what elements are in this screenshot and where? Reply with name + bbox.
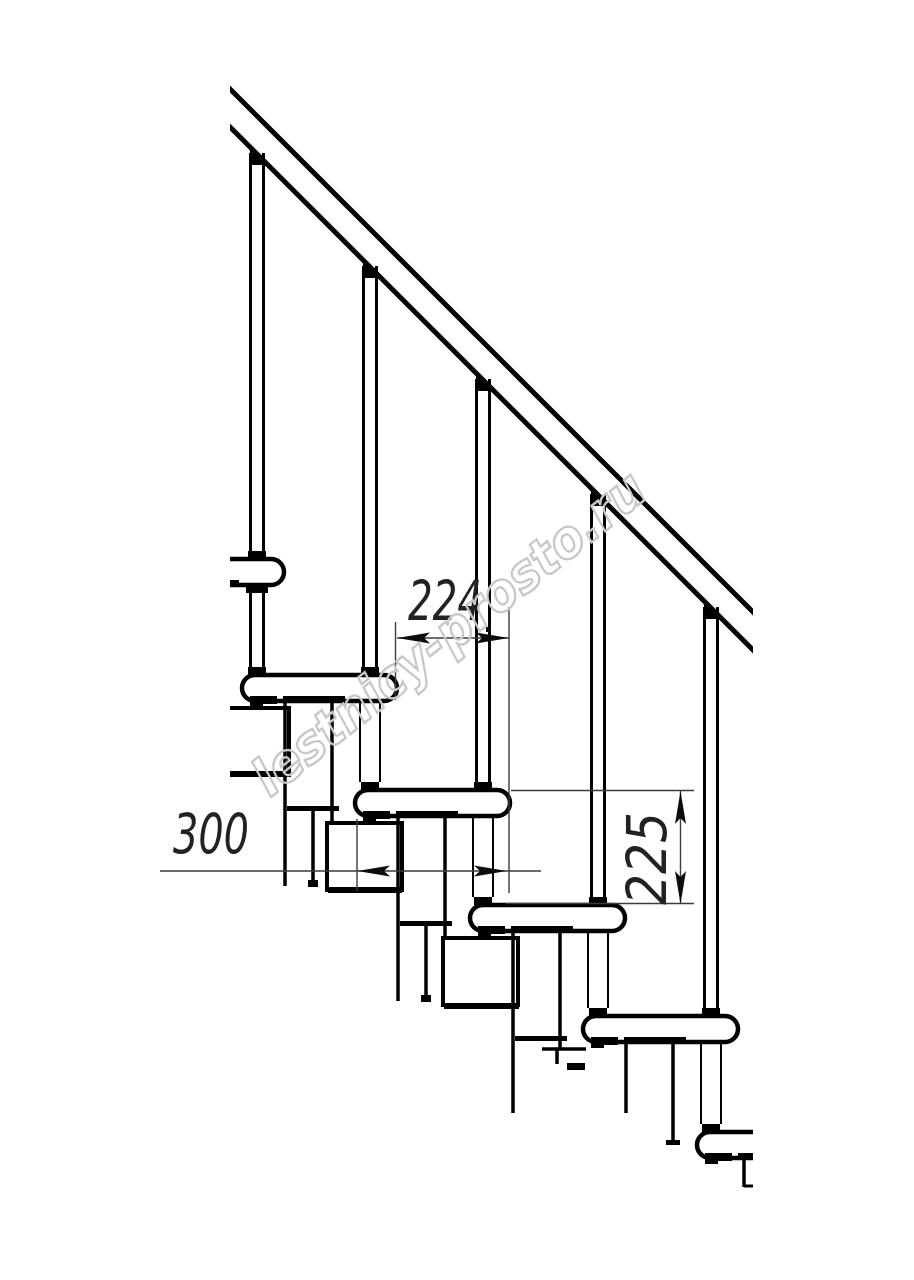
baluster-1 <box>250 147 264 675</box>
dimension-riser-225: 225 <box>615 812 679 905</box>
dimension-label-225: 225 <box>615 812 679 905</box>
staircase-drawing: 224 300 225 lestnicy-prosto.ru <box>0 0 914 1280</box>
square-module-e-fragment <box>542 1049 586 1070</box>
technical-drawing-page: 224 300 225 lestnicy-prosto.ru <box>0 0 914 1280</box>
square-module-d <box>443 938 519 1009</box>
tread-a <box>129 559 284 585</box>
square-module-c <box>327 823 402 893</box>
baluster-2 <box>363 260 377 675</box>
watermark-text: lestnicy-prosto.ru <box>241 459 658 808</box>
baluster-5 <box>704 601 718 1016</box>
dimension-depth-300: 300 <box>173 802 249 866</box>
dimension-label-300: 300 <box>173 802 249 866</box>
